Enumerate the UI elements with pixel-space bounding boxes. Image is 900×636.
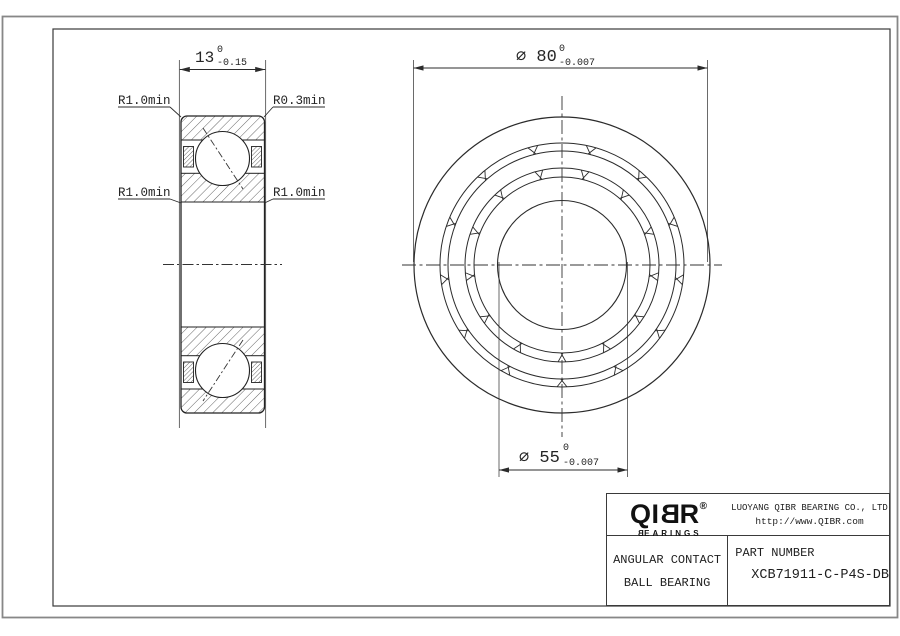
product-type-line1: ANGULAR CONTACT — [613, 553, 721, 567]
bore-dim-tol-upper: 0 — [563, 443, 569, 454]
cage-pocket-edge — [477, 177, 487, 179]
fillet-label-top-right: R0.3min — [273, 94, 326, 108]
section-width-tol-lower: -0.15 — [217, 58, 247, 69]
section-width-value: 13 — [195, 49, 214, 67]
cage-block — [184, 147, 194, 168]
ball-bottom — [196, 344, 250, 398]
cage-pocket-edge — [501, 190, 503, 200]
cage-pocket-edge — [465, 273, 474, 277]
arrowhead — [618, 467, 628, 472]
arrowhead — [414, 65, 424, 70]
cage-pocket-edge — [480, 316, 490, 317]
logo-cell: QIBR® BEARINGS — [607, 494, 730, 535]
od-dim-value: ∅ 80 — [516, 48, 557, 67]
cage-pocket-edge — [675, 277, 682, 284]
ball-top — [196, 132, 250, 186]
part-number-label: PART NUMBER — [735, 546, 889, 560]
cage-pocket-edge — [485, 170, 486, 180]
title-block-header-row: QIBR® BEARINGS LUOYANG QIBR BEARING CO.,… — [607, 494, 889, 536]
part-number-cell: PART NUMBER XCB71911-C-P4S-DB — [728, 536, 889, 606]
product-type-line2: BALL BEARING — [624, 576, 710, 590]
fillet-label-mid-left: R1.0min — [118, 186, 171, 200]
title-block-detail-row: ANGULAR CONTACT BALL BEARING PART NUMBER… — [607, 536, 889, 606]
bore-dim-tol-lower: -0.007 — [563, 458, 599, 469]
drawing-page: 13 0 -0.15 R1.0min R0.3min R1.0min R1.0m… — [0, 0, 900, 636]
cage-block — [252, 147, 262, 168]
arrowhead — [255, 67, 265, 72]
brand-logo: QIBR® — [630, 493, 707, 528]
section-width-tol-upper: 0 — [217, 45, 223, 56]
cage-pocket-edge — [440, 275, 449, 280]
company-cell: LUOYANG QIBR BEARING CO., LTD http://www… — [730, 494, 889, 535]
registered-mark: ® — [700, 501, 707, 512]
cage-pocket-edge — [675, 275, 684, 280]
arrowhead — [180, 67, 190, 72]
section-view: 13 0 -0.15 R1.0min R0.3min R1.0min R1.0m… — [118, 45, 326, 428]
cage-block — [184, 362, 194, 383]
part-number-value: XCB71911-C-P4S-DB — [751, 568, 889, 583]
cage-pocket-edge — [635, 314, 640, 323]
arrowhead — [698, 65, 708, 70]
arrowhead — [499, 467, 509, 472]
product-type-cell: ANGULAR CONTACT BALL BEARING — [607, 536, 728, 606]
cage-block — [252, 362, 262, 383]
cage-pocket-edge — [620, 195, 630, 198]
bore-dim-value: ∅ 55 — [519, 449, 560, 468]
cage-pocket-edge — [649, 275, 657, 281]
fillet-label-mid-right: R1.0min — [273, 186, 326, 200]
title-block: QIBR® BEARINGS LUOYANG QIBR BEARING CO.,… — [606, 493, 890, 606]
cage-pocket-edge — [637, 177, 647, 179]
company-website: http://www.QIBR.com — [755, 516, 863, 527]
od-dim-tol-upper: 0 — [559, 44, 565, 55]
company-name: LUOYANG QIBR BEARING CO., LTD — [731, 503, 888, 513]
od-dim-tol-lower: -0.007 — [559, 58, 595, 69]
cage-pocket-edge — [442, 277, 449, 284]
fillet-label-top-left: R1.0min — [118, 94, 171, 108]
cage-pocket-edge — [639, 170, 640, 180]
front-view: ∅ 80 0 -0.007 ∅ 55 0 -0.007 — [402, 44, 722, 477]
